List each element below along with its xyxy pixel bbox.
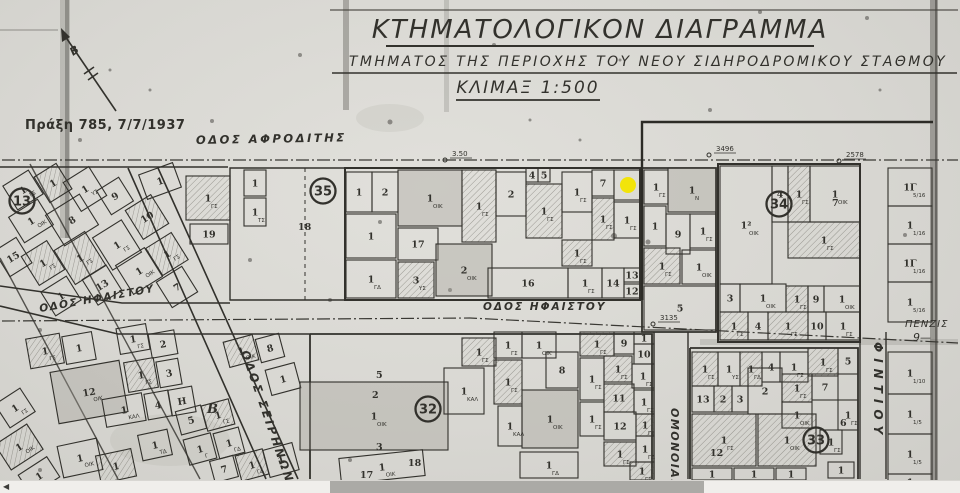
parcel: 1ΟΙΚ: [522, 332, 556, 358]
parcel-sublabel: ΓΣ: [588, 289, 595, 295]
parcel-sublabel: ΓΔ: [648, 455, 655, 461]
parcel: 8: [546, 352, 578, 388]
free-label: 3: [376, 442, 383, 453]
parcel-label: 1: [642, 445, 649, 456]
parcel: 1ΓΔ: [520, 452, 578, 478]
parcel-label: 1: [476, 202, 483, 213]
parcel-label: 11: [612, 394, 625, 405]
parcel-label: 1: [10, 402, 22, 415]
parcel: 17: [398, 228, 438, 260]
parcel: 1ΓΣ: [21, 241, 64, 286]
parcel: 1: [62, 332, 96, 365]
parcel-label: 1: [624, 216, 631, 227]
parcel: 12: [624, 284, 640, 298]
parcel: 1ΓΣ: [788, 222, 860, 258]
parcel: 1ΥΣ: [718, 352, 740, 386]
parcel-sublabel: ΓΣ: [665, 272, 672, 278]
street-label: ΟΔΟΣ ΗΦΑΙΣΤΟΥ: [483, 301, 606, 313]
parcel-label: 1: [536, 341, 543, 352]
speckle: [348, 458, 352, 462]
parcel-label: 1: [461, 387, 468, 398]
parcel-sublabel: ΓΣ: [802, 200, 809, 206]
parcel-label: 3: [727, 294, 734, 305]
parcel-label: 1: [26, 215, 37, 228]
parcel-sublabel: ΤΣ: [257, 218, 265, 224]
parcel-sublabel: ΓΣ: [595, 425, 602, 431]
parcel-label: 5: [541, 171, 548, 182]
map-subtitle: ΤΜΗΜΑΤΟΣ ΤΗΣ ΠΕΡΙΟΧΗΣ ΤΟΥ ΝΕΟΥ ΣΙΔΗΡΟΔΡΟ…: [349, 54, 947, 70]
parcel: 1ΓΣ: [592, 198, 614, 240]
parcel-label: 1: [653, 183, 660, 194]
parcel: 1ΓΣ: [632, 364, 654, 388]
parcel-label: 2: [382, 188, 389, 199]
parcel: 1: [692, 468, 732, 481]
parcel-sublabel: ΓΣ: [851, 421, 858, 427]
parcel-sublabel: 1/5: [913, 460, 922, 466]
parcel: 1: [139, 163, 182, 200]
parcel-label: 7: [600, 179, 607, 190]
speckle: [529, 119, 532, 122]
parcel-label: 12: [625, 287, 638, 298]
parcel-sublabel: ΓΣ: [606, 225, 613, 231]
parcel-sublabel: ΓΣ: [482, 358, 489, 364]
parcel: 1ΓΣ: [54, 232, 106, 285]
parcel-label: 7: [220, 464, 229, 476]
parcel-label: 1: [907, 369, 914, 380]
speckle: [758, 10, 762, 14]
parcel-sublabel: ΟΙΚ: [467, 276, 477, 282]
parcel: 1ΓΣ: [124, 358, 159, 393]
parcel: 1²ΟΙΚ: [720, 166, 772, 284]
parcel-sublabel: ΟΙΚ: [702, 273, 712, 279]
parcel-sublabel: ΓΣ: [630, 226, 637, 232]
parcel-sublabel: ΓΣ: [727, 446, 734, 452]
parcel-label: 1: [368, 275, 375, 286]
parcel-label: 1: [80, 183, 91, 196]
parcel-sublabel: ΟΙΚ: [766, 304, 776, 310]
free-label: 18: [408, 458, 422, 469]
parcel-label: 1: [589, 375, 596, 386]
parcel-label: 15: [5, 250, 22, 266]
cadastral-map: ΚΤΗΜΑΤΟΛΟΓΙΚΟΝ ΔΙΑΓΡΑΜΜΑ ΤΜΗΜΑΤΟΣ ΤΗΣ ΠΕ…: [0, 0, 960, 481]
parcel: 1ΓΣ: [782, 374, 812, 402]
parcel: 1Γ1/16: [888, 244, 932, 282]
parcel-label: 1: [791, 363, 798, 374]
parcel-label: 5: [845, 357, 852, 368]
parcel-label: 2: [461, 266, 468, 277]
parcel: 4: [526, 168, 538, 182]
parcel: 1ΓΣ: [644, 170, 668, 204]
speckle: [149, 89, 152, 92]
parcel-sublabel: ΥΣ: [731, 375, 739, 381]
parcel: 5: [538, 168, 550, 182]
speckle: [78, 138, 82, 142]
parcel-sublabel: ΓΣ: [791, 332, 798, 338]
parcel: 1ΓΣ: [580, 332, 614, 356]
parcel: 1ΓΣ: [116, 324, 150, 355]
parcel-label: 13: [696, 395, 709, 406]
free-label: 12: [710, 448, 723, 459]
parcel-label: 1: [820, 358, 827, 369]
parcel-label: 1: [75, 343, 83, 355]
cadastral-map-canvas: ΚΤΗΜΑΤΟΛΟΓΙΚΟΝ ΔΙΑΓΡΑΜΜΑ ΤΜΗΜΑΤΟΣ ΤΗΣ ΠΕ…: [0, 0, 960, 481]
parcel-sublabel: 1/5: [913, 420, 922, 426]
free-label: 18: [298, 222, 312, 233]
parcel-sublabel: ΓΣ: [826, 368, 833, 374]
parcel-label: 1: [821, 236, 828, 247]
parcel: 1ΓΣ: [692, 414, 756, 466]
parcel-label: 1: [476, 348, 483, 359]
parcel: 1ΟΙΚ: [740, 284, 786, 312]
parcel: 1ΓΣ: [494, 332, 522, 358]
map-marker[interactable]: [620, 177, 636, 193]
parcel-label: 1: [794, 295, 801, 306]
parcel: 11/5: [888, 394, 932, 434]
parcel-label: 17: [411, 240, 424, 251]
svg-text:33: 33: [807, 434, 825, 449]
parcel-label: 1: [838, 466, 845, 477]
parcel: 13: [624, 268, 640, 282]
parcel: 1ΓΣ: [526, 184, 562, 238]
parcel-label: 1Γ: [903, 259, 917, 270]
parcel: 12ΟΙΚ: [50, 360, 128, 423]
parcel-label: 1: [796, 190, 803, 201]
parcel: 7: [592, 170, 614, 196]
parcel: 1ΓΔ: [740, 352, 762, 386]
parcel: 16: [488, 268, 568, 298]
parcel-label: 1: [641, 334, 648, 345]
parcel-label: 3: [165, 368, 173, 380]
parcel: 1ΓΣ: [580, 402, 604, 436]
parcel-sublabel: ΓΣ: [547, 217, 554, 223]
parcel: 1: [95, 449, 136, 481]
parcel-label: 1: [547, 415, 554, 426]
free-label: 2: [372, 390, 379, 401]
parcel-label: 1: [689, 186, 696, 197]
parcel: 1ΓΣ: [690, 214, 716, 248]
parcel-label: 1: [371, 412, 378, 423]
parcel-label: 1: [134, 265, 145, 278]
scroll-left-arrow-icon[interactable]: ◀: [3, 482, 9, 492]
parcel-sublabel: 1/16: [913, 231, 926, 237]
parcel-sublabel: ΓΣ: [211, 204, 218, 210]
parcel-label: Η: [177, 396, 188, 408]
parcel: 1ΓΣ: [630, 462, 654, 481]
parcel-label: 1: [702, 365, 709, 376]
parcel-sublabel: ΓΔ: [374, 285, 381, 291]
svg-text:35: 35: [314, 185, 332, 200]
parcel: Η: [168, 386, 196, 416]
parcel-label: 1: [731, 322, 738, 333]
free-label: 6: [840, 418, 847, 429]
parcel: 1: [346, 214, 396, 258]
parcel: 7: [812, 374, 838, 400]
parcel: 9: [614, 332, 634, 354]
speckle: [903, 233, 907, 237]
speckle: [109, 69, 112, 72]
parcel-sublabel: ΓΣ: [737, 332, 744, 338]
parcel-label: 1: [839, 295, 846, 306]
parcel-label: 1: [784, 436, 791, 447]
parcel-label: 1: [574, 249, 581, 260]
parcel-label: 4: [529, 171, 536, 182]
parcel-label: 2: [508, 190, 515, 201]
parcel-label: 1: [594, 340, 601, 351]
speckle: [646, 240, 651, 245]
parcel-label: 12: [613, 422, 626, 433]
parcel-label: 1: [748, 365, 755, 376]
speckle: [708, 108, 712, 112]
parcel-label: 1: [617, 450, 624, 461]
parcel: 19: [190, 224, 228, 244]
parcel-sublabel: ΓΣ: [708, 375, 715, 381]
parcel: 10: [634, 344, 654, 364]
parcel-label: 1: [751, 470, 758, 481]
parcel: 1ΓΣ: [26, 333, 65, 368]
parcel-label: 1²: [741, 221, 752, 232]
parcel-sublabel: ΓΣ: [482, 212, 489, 218]
parcel-sublabel: ΟΙΚ: [377, 422, 387, 428]
svg-text:ΠΕΝΖΙΣ: ΠΕΝΖΙΣ: [905, 319, 948, 330]
parcel-label: 1: [907, 450, 914, 461]
parcel: 3ΥΣ: [398, 262, 434, 298]
parcel-label: 1: [225, 438, 234, 450]
speckle: [210, 119, 214, 123]
parcel: 1ΓΣ: [808, 348, 838, 376]
parcel: 5: [838, 348, 858, 374]
parcel-sublabel: ΓΣ: [706, 237, 713, 243]
parcel-label: 1: [907, 221, 914, 232]
parcel: 3: [156, 358, 182, 387]
parcel-sublabel: ΓΣ: [621, 375, 628, 381]
parcel-sublabel: ΓΣ: [595, 385, 602, 391]
parcel: 11: [604, 384, 634, 412]
parcel-label: 1: [907, 298, 914, 309]
parcel: 1ΓΣ: [604, 356, 632, 382]
parcel-label: 10: [810, 322, 824, 333]
parcel: 1ΟΙΚ: [398, 170, 462, 226]
parcel-sublabel: ΚΑΛ: [467, 397, 478, 403]
parcel-label: 7: [822, 383, 829, 394]
parcel-label: 9: [110, 190, 122, 203]
parcel-sublabel: ΓΣ: [21, 408, 30, 417]
parcel: 1ΓΣ: [462, 338, 496, 366]
parcel-sublabel: ΓΣ: [580, 198, 587, 204]
parcel: 1ΓΣ: [786, 286, 808, 312]
parcel-sublabel: ΓΣ: [800, 305, 807, 311]
parcel-label: 1: [907, 410, 914, 421]
parcel-sublabel: 5/16: [913, 193, 926, 199]
parcel-sublabel: ΓΣ: [659, 193, 666, 199]
parcel-sublabel: ΟΙΚ: [790, 446, 800, 452]
svg-text:13: 13: [13, 195, 31, 210]
street-label: ΟΜΟΝΟΙΑΣ: [668, 408, 681, 481]
parcel: 1ΤΣ: [244, 198, 266, 226]
parcel: 1ΓΣ: [186, 176, 230, 220]
measurement-label: 3496: [716, 145, 734, 153]
parcel-label: 1: [785, 322, 792, 333]
parcel-sublabel: ΓΣ: [646, 382, 653, 388]
speckle: [879, 89, 882, 92]
map-viewer: ΚΤΗΜΑΤΟΛΟΓΙΚΟΝ ΔΙΑΓΡΑΜΜΑ ΤΜΗΜΑΤΟΣ ΤΗΣ ΠΕ…: [0, 0, 960, 493]
parcel-label: 1: [615, 365, 622, 376]
parcel-label: 2: [720, 395, 727, 406]
parcel: 1ΓΣ: [0, 388, 35, 428]
parcel-sublabel: ΟΙΚ: [37, 219, 49, 229]
parcel: 12: [604, 412, 636, 440]
parcel-label: 9: [813, 295, 820, 306]
parcel-label: 1: [582, 279, 589, 290]
map-title: ΚΤΗΜΑΤΟΛΟΓΙΚΟΝ ΔΙΑΓΡΑΜΜΑ: [372, 15, 829, 45]
parcel-sublabel: 1/16: [913, 269, 926, 275]
parcel-label: 13: [625, 271, 638, 282]
measurement-label: 3.50: [452, 150, 468, 158]
parcel-label: 1: [726, 365, 733, 376]
parcel: 1ΟΙΚ: [810, 166, 860, 222]
parcel-label: 1: [155, 176, 165, 189]
parcel-sublabel: 1/10: [913, 379, 926, 385]
parcel: 1: [244, 170, 266, 196]
parcel-label: 8: [266, 343, 276, 355]
speckle: [298, 53, 302, 57]
parcel: 1ΓΣ: [692, 352, 718, 386]
parcel: 14: [602, 268, 624, 298]
parcel: 1ΓΣ: [788, 166, 810, 222]
parcel: 1: [346, 172, 372, 212]
parcel-label: 1: [356, 188, 363, 199]
speckle: [378, 220, 382, 224]
parcel-label: 16: [521, 279, 535, 290]
parcel-label: 1: [112, 239, 123, 252]
parcel: 3: [720, 284, 740, 312]
parcel-label: 1: [368, 232, 375, 243]
parcel-label: 2: [762, 387, 769, 398]
parcel: 1ΓΣ: [634, 390, 654, 414]
parcel: 1ΚΑΛ: [498, 406, 524, 446]
parcel-sublabel: ΟΙΚ: [145, 269, 157, 279]
parcel-label: 1: [505, 341, 512, 352]
map-scale: ΚΛΙΜΑΞ 1:500: [456, 78, 599, 98]
title-block: ΚΤΗΜΑΤΟΛΟΓΙΚΟΝ ΔΙΑΓΡΑΜΜΑ ΤΜΗΜΑΤΟΣ ΤΗΣ ΠΕ…: [332, 15, 957, 100]
parcel-sublabel: ΥΣ: [418, 286, 426, 292]
parcel-label: 3: [737, 395, 744, 406]
parcel: 9: [808, 286, 824, 312]
parcel-sublabel: ΓΣ: [511, 351, 518, 357]
parcel: 2: [372, 172, 398, 212]
parcel-label: 1: [788, 470, 795, 481]
parcel-sublabel: ΓΔ: [233, 446, 241, 454]
parcel-sublabel: ΓΣ: [834, 448, 841, 454]
parcel: 11/16: [888, 206, 932, 244]
parcel: 4: [748, 312, 768, 340]
street-label: ΦΙΝΤΙΟΥ: [871, 342, 885, 440]
parcel-sublabel: ΓΣ: [580, 259, 587, 265]
parcel: 1ΓΣ: [768, 312, 808, 340]
parcel: 1ΓΣ: [562, 172, 592, 212]
parcel-label: 19: [202, 230, 216, 241]
parcel-sublabel: 5/16: [913, 308, 926, 314]
free-label: 7: [832, 198, 839, 209]
parcel-label: 9: [621, 339, 628, 350]
parcel-sublabel: ΓΔ: [552, 471, 559, 477]
parcel: 8: [46, 194, 99, 246]
parcel-sublabel: ΓΣ: [623, 460, 630, 466]
parcel-label: 1: [546, 461, 553, 472]
parcel: 1: [828, 462, 854, 478]
free-label: 5: [376, 370, 383, 381]
parcel-sublabel: ΓΔ: [754, 375, 761, 381]
scrollbar-thumb[interactable]: [330, 481, 704, 493]
parcel: 1ΓΣ: [614, 202, 640, 238]
parcel-sublabel: ΓΣ: [511, 388, 518, 394]
speckle: [865, 16, 869, 20]
speckle: [579, 139, 582, 142]
parcel-label: 4: [755, 322, 762, 333]
parcel-label: 1: [505, 378, 512, 389]
parcel: 1ΟΙΚ: [682, 250, 716, 284]
parcel-sublabel: ΟΙΚ: [845, 305, 855, 311]
parcel: 1ΓΣ: [462, 170, 496, 242]
street-label: ΟΔΟΣ ΑΦΡΟΔΙΤΗΣ: [196, 130, 347, 147]
parcel-label: 1Γ: [903, 183, 917, 194]
parcel: 13: [692, 386, 714, 412]
parcel-label: 1: [696, 263, 703, 274]
parcel: 1ΓΔ: [346, 260, 396, 298]
parcel: 1ΓΣ: [494, 360, 522, 404]
parcel-sublabel: Ν: [695, 196, 699, 202]
parcel-label: 2: [159, 339, 167, 351]
parcel-sublabel: ΟΙΚ: [553, 425, 563, 431]
parcel: 1ΓΣ: [644, 248, 680, 284]
block-number: 35: [311, 179, 336, 204]
parcel: 3: [732, 386, 748, 412]
parcel: 1ΟΙΚ: [824, 286, 860, 312]
parcel: 1ΓΣ: [568, 268, 602, 298]
parcel: 1ΚΑΛ: [444, 368, 484, 414]
parcel-sublabel: ΓΣ: [123, 245, 132, 254]
parcel-label: 1: [541, 207, 548, 218]
svg-text:9—: 9—: [913, 331, 931, 344]
parcel-label: 1: [507, 422, 514, 433]
parcel-label: 4: [154, 400, 163, 412]
parcel: 2: [714, 386, 732, 412]
parcel-sublabel: ΟΙΚ: [433, 204, 443, 210]
parcel: 11/10: [888, 352, 932, 394]
parcel: 1ΓΣ: [580, 358, 604, 400]
parcel: 1ΟΙΚ: [522, 390, 578, 448]
parcel: 1ΓΣ: [826, 312, 860, 340]
parcel-label: 1: [642, 421, 649, 432]
parcel-label: 1: [427, 194, 434, 205]
parcel-label: 1: [840, 322, 847, 333]
parcel: 4: [762, 352, 780, 382]
parcel-label: 1: [574, 188, 581, 199]
parcel-sublabel: ΓΣ: [827, 246, 834, 252]
measurement-label: 2578: [846, 151, 864, 159]
parcel-label: 1: [640, 372, 647, 383]
horizontal-scrollbar[interactable]: ◀: [0, 480, 960, 493]
parcel-label: 1: [279, 374, 288, 386]
parcel-label: 1: [721, 436, 728, 447]
parcel-label: 8: [559, 366, 566, 377]
parcel: 1Γ5/16: [888, 168, 932, 206]
parcel-sublabel: ΟΙΚ: [749, 231, 759, 237]
parcel: 2ΟΙΚ: [436, 244, 492, 296]
parcel-label: 1: [659, 262, 666, 273]
parcel-label: 1: [652, 222, 659, 233]
speckle: [388, 120, 393, 125]
parcel-label: 14: [606, 279, 620, 290]
